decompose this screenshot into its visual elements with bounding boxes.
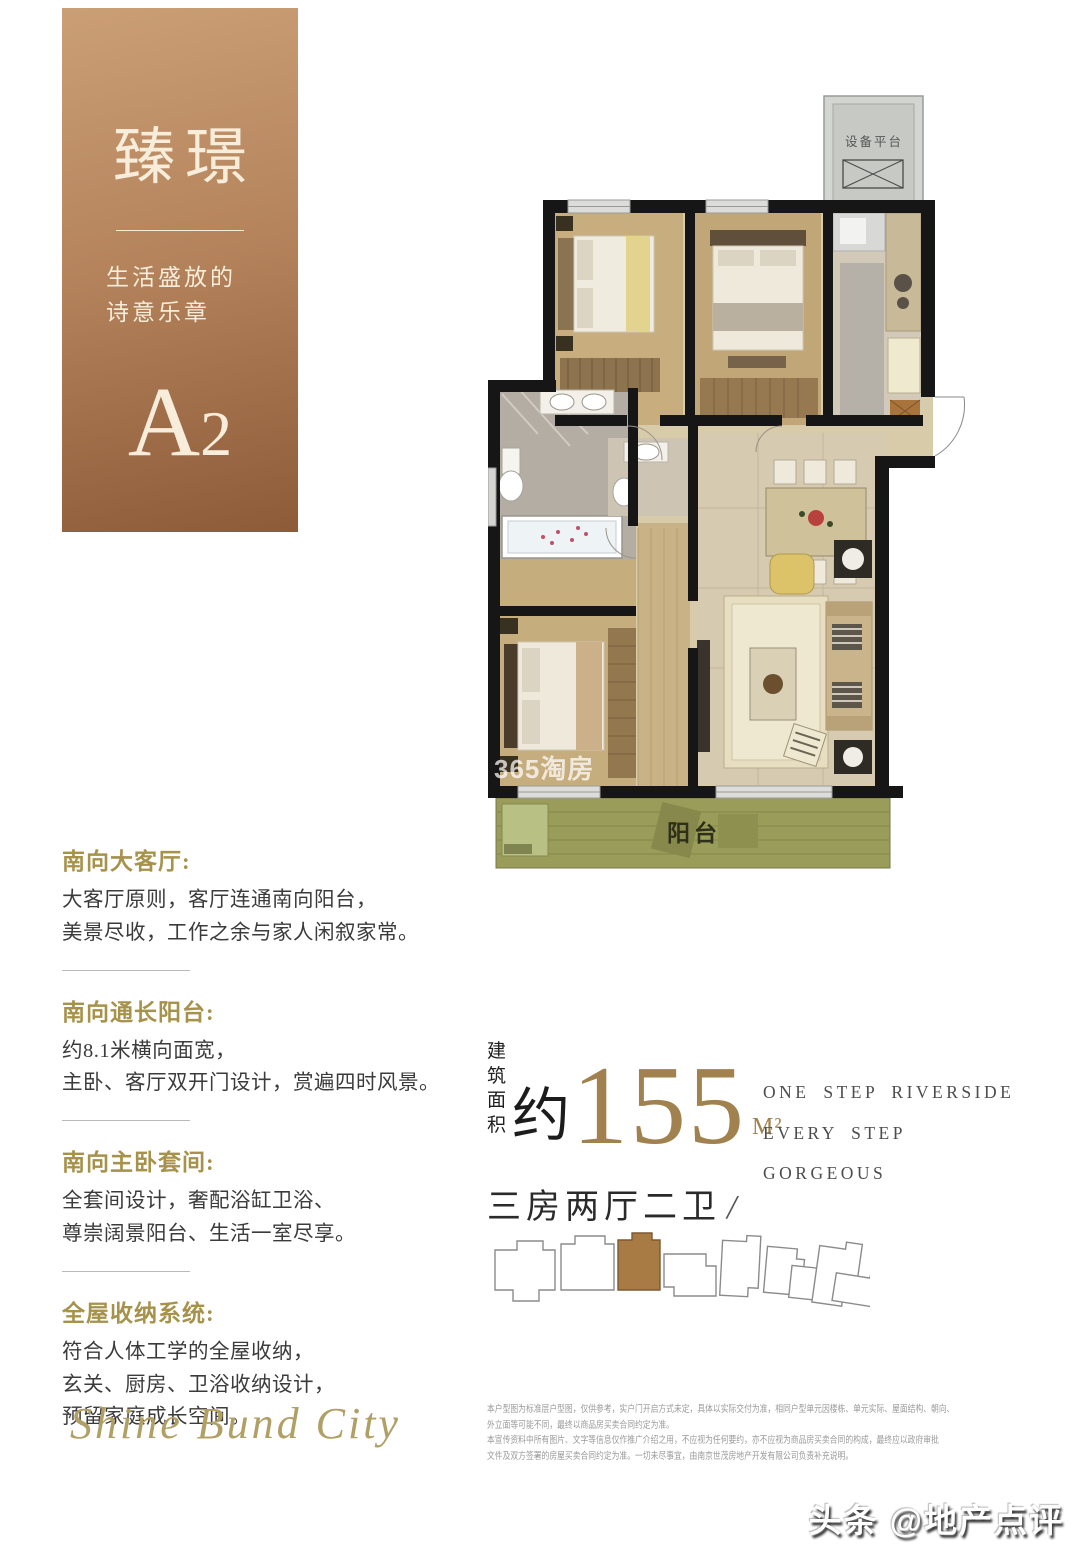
hero-divider — [116, 230, 244, 231]
unit-type-label: A2 — [62, 372, 298, 472]
feature-title: 南向主卧套间: — [62, 1143, 467, 1177]
site-building — [495, 1241, 555, 1301]
bedroom-1 — [556, 216, 660, 392]
site-plan — [485, 1226, 870, 1321]
feature-title: 南向通长阳台: — [62, 993, 467, 1027]
hall-bathroom — [608, 438, 688, 516]
kitchen-marble — [840, 263, 884, 415]
toutiao-watermark: 头条 @地产点评 — [809, 1494, 1064, 1542]
hero-panel: 臻璟 生活盛放的 诗意乐章 A2 — [62, 8, 298, 532]
feature-title: 全屋收纳系统: — [62, 1294, 467, 1328]
disclaimer-text: 本户型图为标准层户型图，仅供参考，实户门开启方式未定，具体以实际交付为准，相同户… — [487, 1402, 979, 1465]
area-label: 建筑 面积 — [487, 1040, 508, 1139]
area-approx: 约 — [512, 1088, 570, 1143]
section-divider — [62, 970, 190, 971]
flyer-page: 臻璟 生活盛放的 诗意乐章 A2 设备平台 — [0, 0, 1080, 1551]
site-building — [720, 1234, 761, 1297]
equipment-platform: 设备平台 — [824, 96, 923, 210]
brand-logo: Shine Bund City — [70, 1398, 401, 1449]
area-value: 155 — [572, 1061, 746, 1153]
balcony: 阳台 — [496, 798, 890, 868]
photo-watermark: 365淘房 — [494, 754, 594, 784]
balcony-label: 阳台 — [667, 820, 721, 846]
floorplan-svg: 设备平台 — [488, 88, 966, 878]
hero-subtitle: 生活盛放的 诗意乐章 — [62, 261, 298, 330]
feature-master-suite: 南向主卧套间: 全套间设计，奢配浴缸卫浴、 尊崇阔景阳台、生活一室尽享。 — [62, 1143, 467, 1251]
section-divider — [62, 1120, 190, 1121]
layout-type: 三房两厅二卫/ — [487, 1179, 757, 1228]
site-building-highlighted — [618, 1233, 660, 1290]
feature-living-room: 南向大客厅: 大客厅原则，客厅连通南向阳台， 美景尽收，工作之余与家人闲叙家常。 — [62, 842, 467, 950]
equipment-label: 设备平台 — [845, 134, 903, 149]
feature-title: 南向大客厅: — [62, 842, 467, 876]
site-building — [664, 1254, 716, 1296]
site-building — [561, 1236, 614, 1290]
section-divider — [62, 1271, 190, 1272]
feature-balcony: 南向通长阳台: 约8.1米横向面宽， 主卧、客厅双开门设计，赏遍四时风景。 — [62, 993, 467, 1101]
area-block: 建筑 面积 约 155 M² 三房两厅二卫/ — [487, 1040, 757, 1228]
entry-door — [935, 397, 965, 456]
floorplan-image: 设备平台 — [488, 88, 966, 878]
feature-list: 南向大客厅: 大客厅原则，客厅连通南向阳台， 美景尽收，工作之余与家人闲叙家常。… — [62, 842, 467, 1434]
english-slogan: ONE STEP RIVERSIDE EVERY STEP GORGEOUS — [763, 1072, 1014, 1194]
project-name: 臻璟 — [62, 106, 298, 196]
bedroom-2 — [700, 230, 818, 418]
